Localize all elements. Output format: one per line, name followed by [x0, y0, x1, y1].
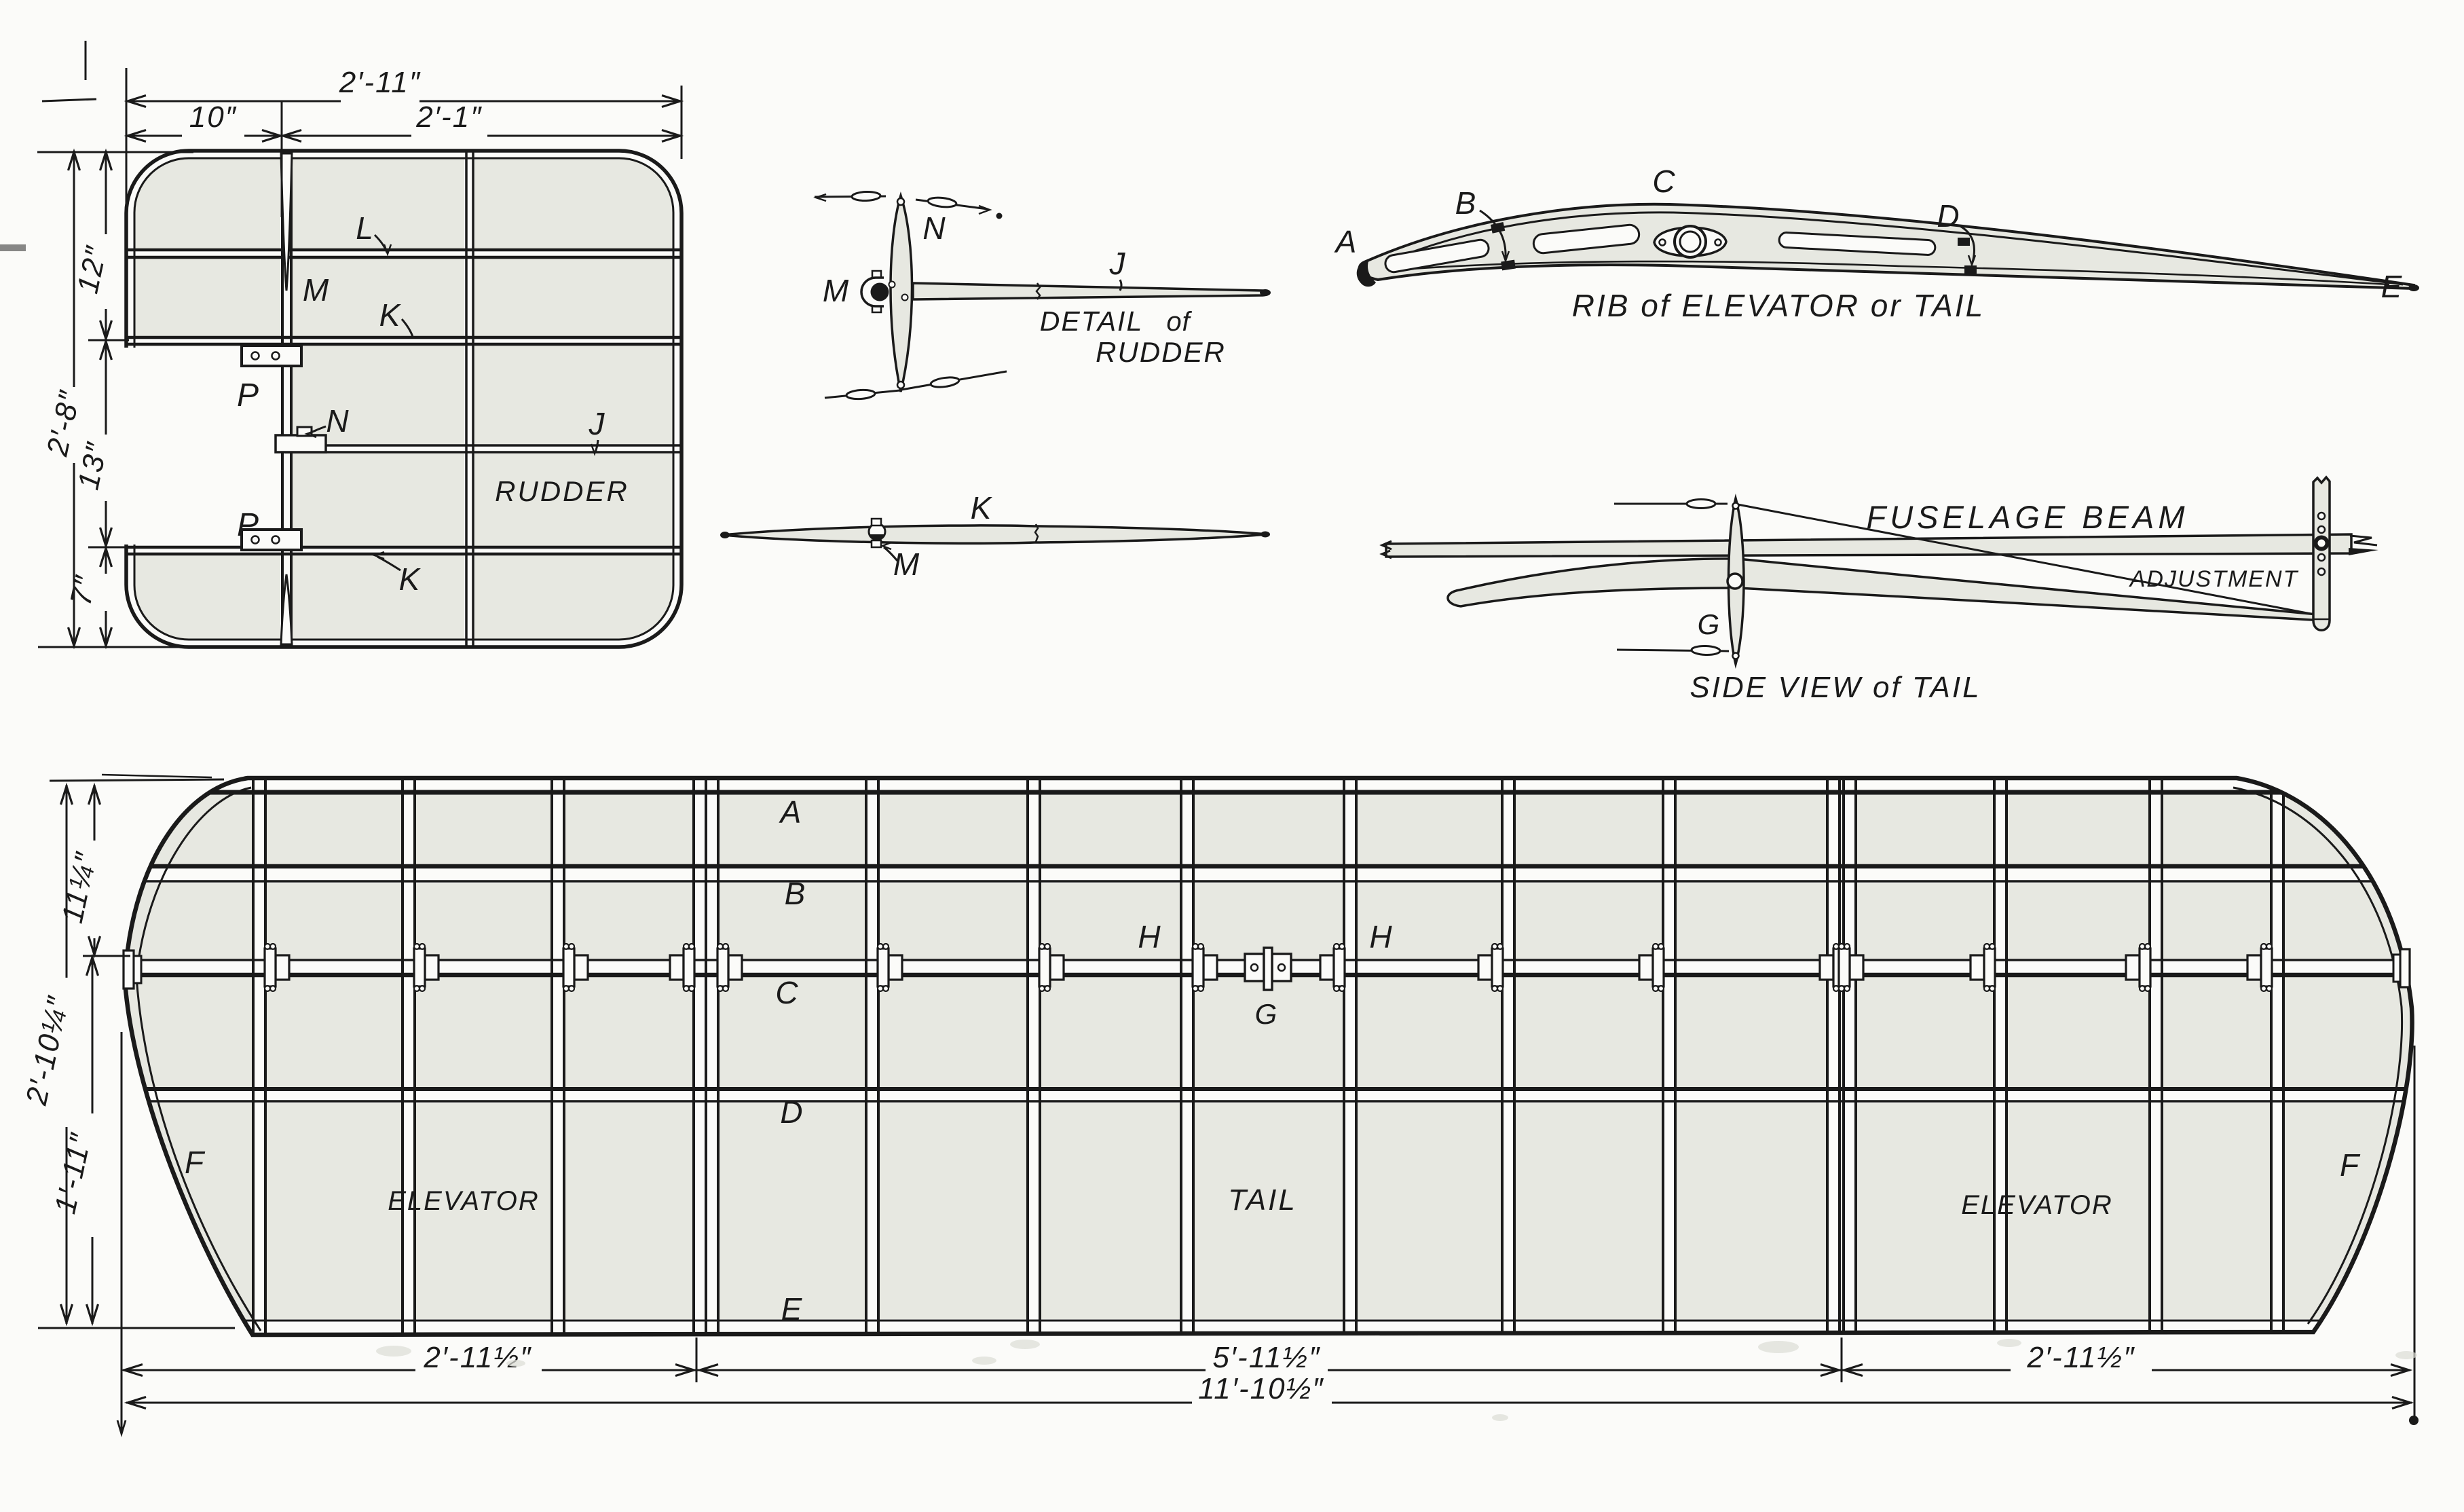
svg-text:ELEVATOR: ELEVATOR: [1961, 1190, 2113, 1220]
svg-text:RUDDER: RUDDER: [495, 475, 629, 507]
svg-text:M: M: [893, 547, 920, 582]
svg-text:C: C: [1652, 164, 1676, 199]
svg-text:ADJUSTMENT: ADJUSTMENT: [2129, 566, 2299, 592]
svg-text:D: D: [1937, 198, 1960, 234]
svg-text:DETAIL: DETAIL: [1040, 306, 1144, 337]
svg-text:P: P: [237, 377, 260, 413]
svg-text:N: N: [326, 403, 350, 439]
svg-text:RIB of ELEVATOR or TAIL: RIB of ELEVATOR or TAIL: [1572, 288, 1985, 323]
svg-text:E: E: [2381, 269, 2404, 304]
svg-text:K: K: [399, 561, 422, 597]
svg-text:TAIL: TAIL: [1228, 1183, 1297, 1217]
svg-text:B: B: [1455, 185, 1478, 221]
svg-text:E: E: [781, 1291, 804, 1327]
svg-text:2′-11″: 2′-11″: [339, 66, 422, 99]
svg-text:FUSELAGE BEAM: FUSELAGE BEAM: [1867, 499, 2189, 535]
svg-text:of: of: [1166, 307, 1192, 337]
svg-text:11′-10½″: 11′-10½″: [1198, 1372, 1324, 1405]
svg-text:5′-11½″: 5′-11½″: [1212, 1341, 1320, 1374]
svg-text:J: J: [589, 406, 606, 441]
svg-text:RUDDER: RUDDER: [1096, 336, 1226, 368]
svg-text:2′-11½″: 2′-11½″: [423, 1341, 531, 1374]
svg-text:A: A: [1334, 224, 1358, 259]
svg-text:H: H: [1138, 919, 1161, 955]
svg-text:K: K: [379, 297, 402, 333]
svg-text:2′-11½″: 2′-11½″: [2026, 1341, 2135, 1374]
svg-text:B: B: [785, 876, 807, 911]
svg-text:F: F: [2340, 1147, 2361, 1183]
svg-text:10″: 10″: [189, 100, 238, 134]
svg-text:J: J: [1109, 246, 1127, 281]
svg-text:F: F: [185, 1145, 206, 1180]
svg-text:P: P: [237, 507, 260, 543]
svg-text:SIDE VIEW of TAIL: SIDE VIEW of TAIL: [1690, 671, 1981, 704]
svg-text:G: G: [1698, 608, 1721, 640]
svg-text:N: N: [922, 210, 946, 246]
svg-text:A: A: [779, 794, 803, 830]
svg-text:ELEVATOR: ELEVATOR: [388, 1186, 540, 1216]
svg-text:D: D: [780, 1094, 804, 1130]
svg-text:K: K: [971, 490, 993, 525]
svg-text:L: L: [356, 210, 375, 246]
svg-text:H: H: [1369, 919, 1393, 955]
svg-text:M: M: [823, 273, 850, 308]
svg-text:M: M: [303, 272, 330, 308]
svg-text:C: C: [775, 975, 799, 1010]
svg-text:G: G: [1255, 998, 1279, 1030]
svg-text:2′-1″: 2′-1″: [415, 100, 482, 134]
